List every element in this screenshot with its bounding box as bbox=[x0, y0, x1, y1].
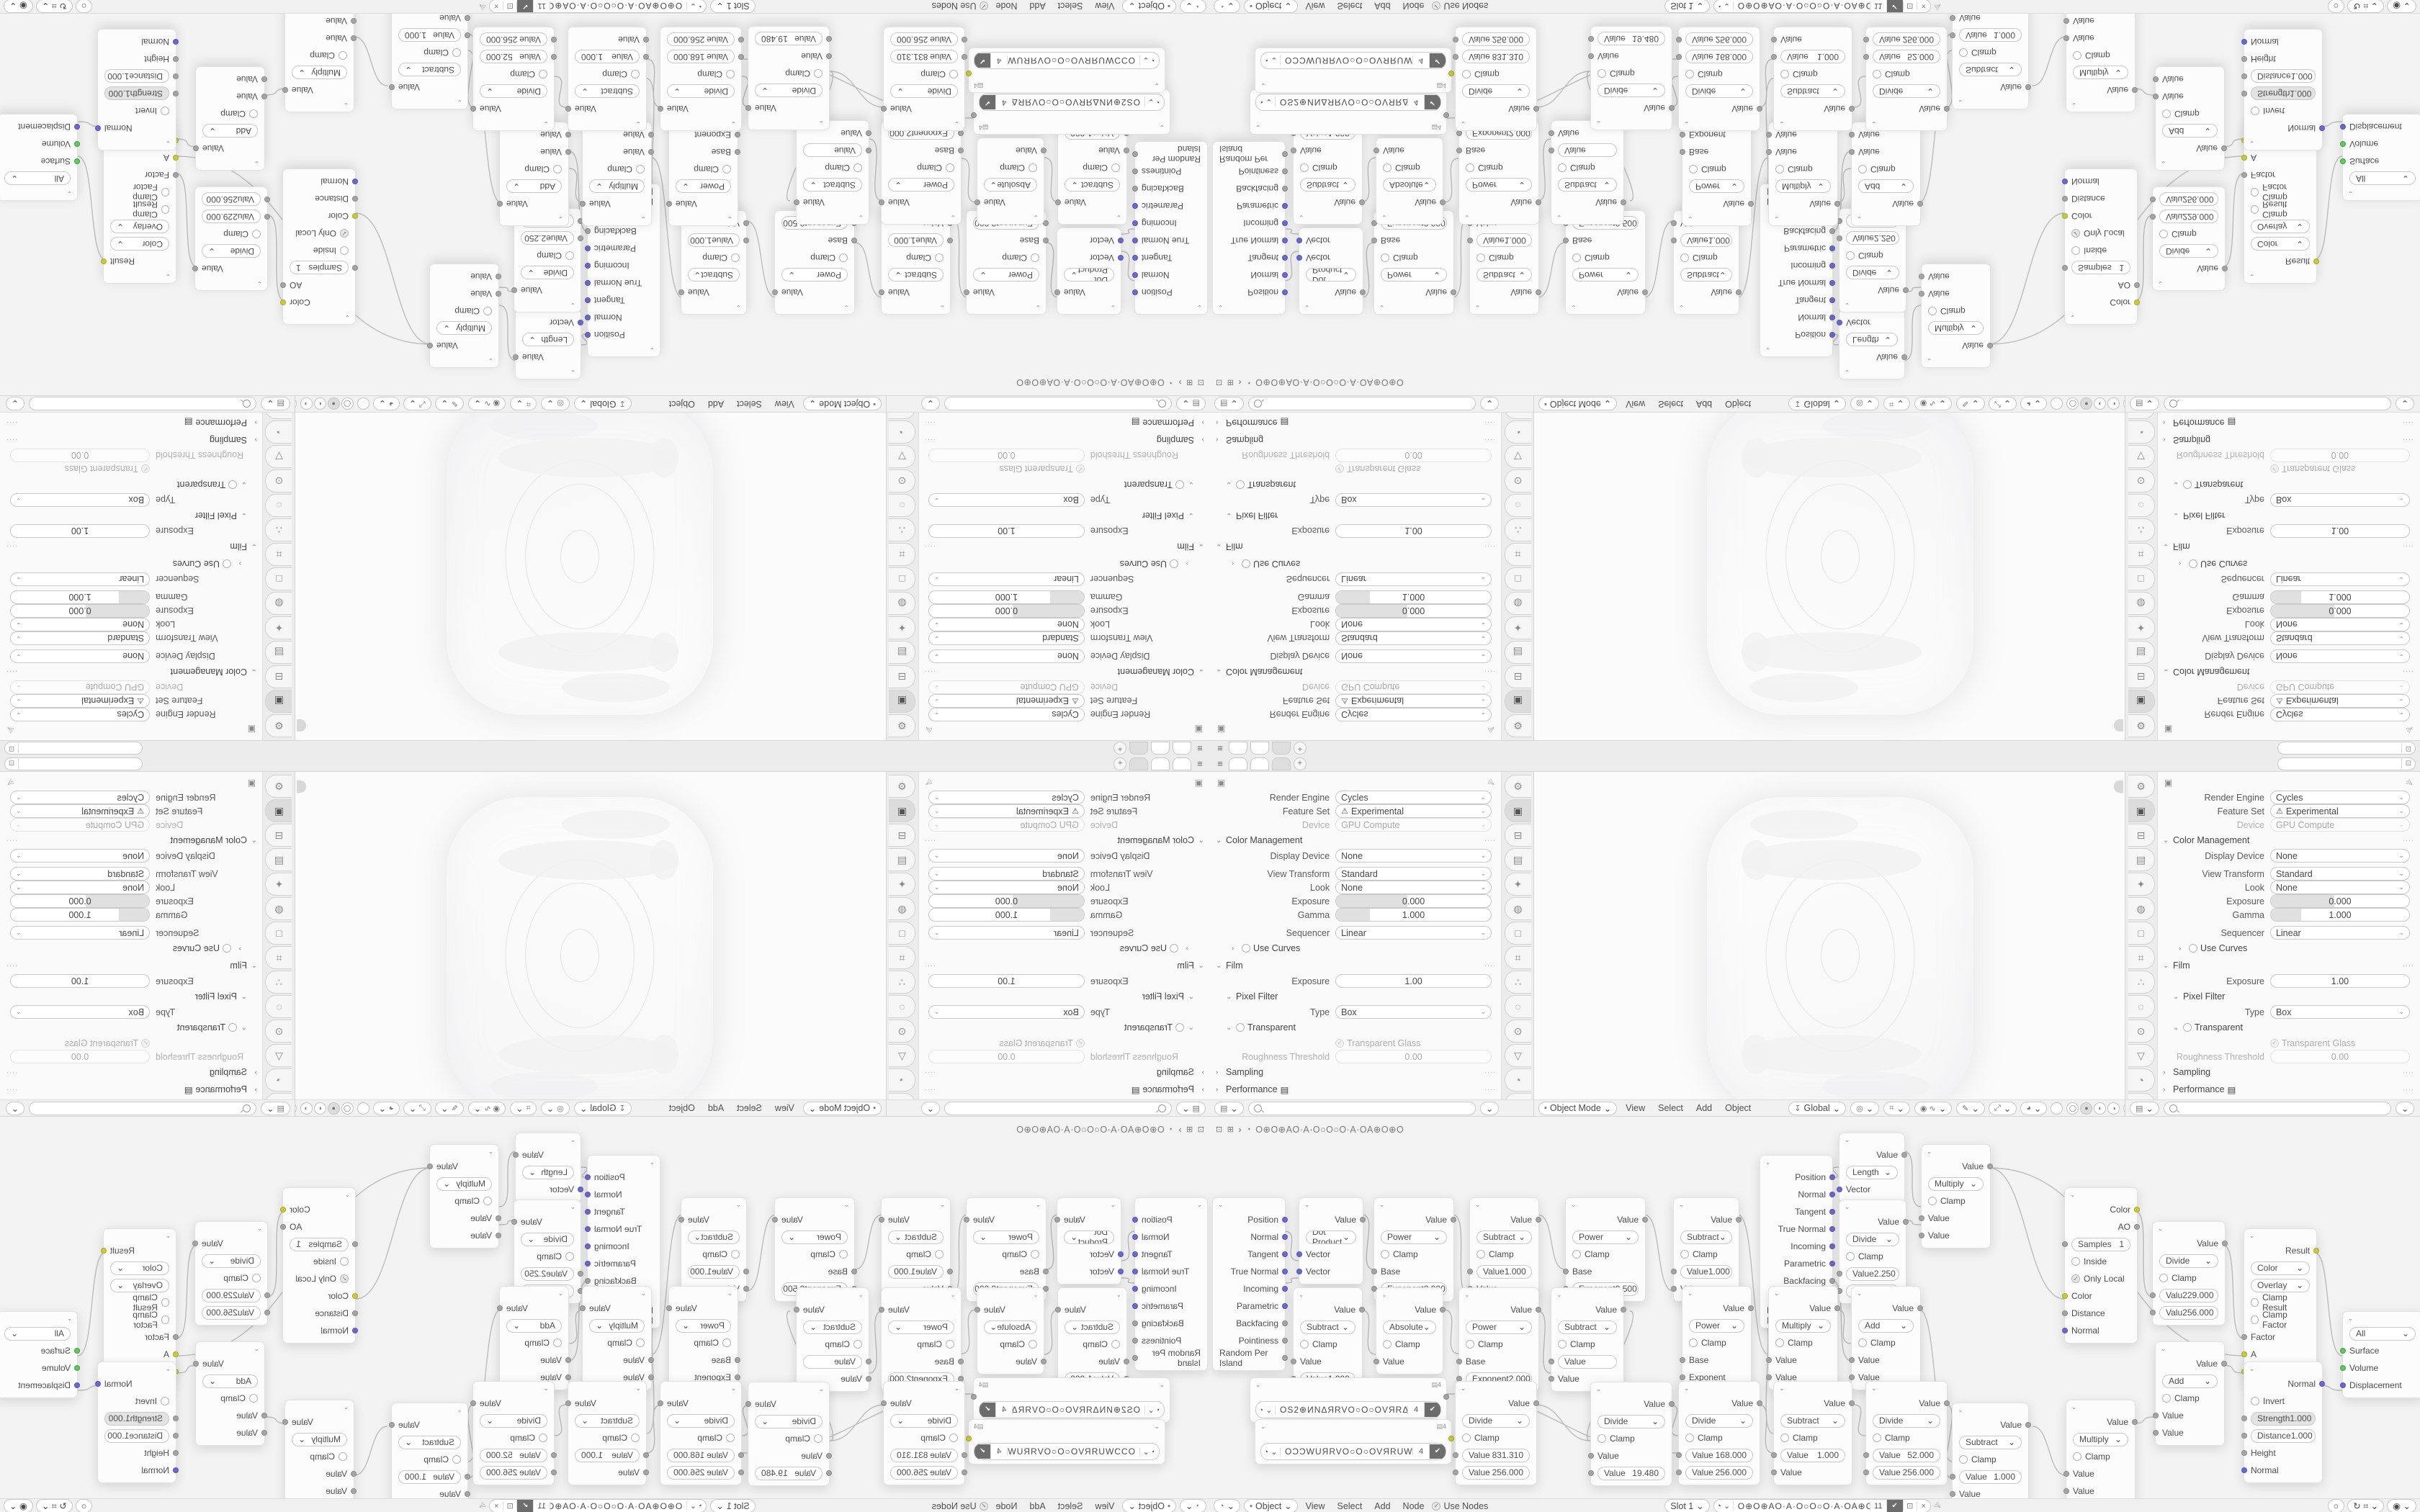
value-field[interactable]: Distance1.000 bbox=[2251, 70, 2316, 84]
node-menu-select[interactable]: Select bbox=[1333, 1, 1367, 12]
toggle-use-curves[interactable]: ›Use Curves bbox=[0, 940, 263, 957]
node-math-multiply-a[interactable]: ⌄ValueMultiply⌄ClampValueValue bbox=[1921, 264, 1991, 368]
tab-material[interactable]: ◔ bbox=[1505, 420, 1531, 444]
prop-field-feature-set[interactable]: ⚠Experimental⌄ bbox=[1335, 804, 1492, 818]
node-header[interactable]: ⌄ bbox=[516, 366, 581, 379]
prop-field-roughness-threshold[interactable]: 0.00 bbox=[1335, 449, 1492, 462]
pin-icon[interactable]: ⌲ bbox=[1932, 1500, 1943, 1512]
node-math-divide-19[interactable]: ⌄ValueDivide⌄ClampValueValue19.480 bbox=[1590, 26, 1672, 130]
node-header[interactable]: ⌄ bbox=[1953, 96, 2028, 109]
node-material-output[interactable]: ⌄All⌄SurfaceVolumeDisplacement bbox=[0, 114, 78, 201]
sidebar-toggle[interactable] bbox=[2114, 780, 2123, 793]
fake-user-shield-icon[interactable]: ✔ bbox=[980, 1403, 996, 1417]
shading-mode-3[interactable]: ◑ bbox=[300, 398, 313, 410]
node-math-subtract-f[interactable]: ⌄ValueSubtract⌄ClampValue1.000Value bbox=[391, 14, 468, 109]
value-field[interactable]: Samples1 bbox=[290, 261, 349, 275]
workspace-tab[interactable] bbox=[1151, 757, 1170, 770]
prop-field-look[interactable]: None⌄ bbox=[928, 881, 1085, 894]
node-vector-math-length[interactable]: ⌄ValueLength⌄Vector bbox=[515, 310, 581, 379]
node-header[interactable]: ⌄ bbox=[1760, 1156, 1832, 1169]
node-header-icon-1[interactable]: ↻ ⌗ ⌄ bbox=[36, 0, 73, 13]
node-ambient-occlusion[interactable]: ⌄ColorAOSamples1Inside✓Only LocalColorDi… bbox=[2064, 168, 2138, 325]
prop-field-type[interactable]: Box⌄ bbox=[1335, 1005, 1492, 1019]
fake-user-shield-icon[interactable]: ✔ bbox=[974, 53, 991, 68]
fake-user-shield-icon[interactable]: ✔ bbox=[974, 1444, 991, 1459]
section-sampling[interactable]: ›Sampling···· bbox=[2157, 1063, 2420, 1081]
snap-pill-2[interactable]: ◉ ∿⌄ bbox=[1914, 397, 1952, 411]
node-math-divide-831[interactable]: ⌄ValueDivide⌄ClampValue831.310Value256.0… bbox=[1455, 1381, 1537, 1485]
search-input[interactable] bbox=[944, 1102, 1172, 1115]
node-header[interactable]: ⌄ bbox=[1774, 117, 1852, 130]
operation-dropdown[interactable]: Divide⌄ bbox=[521, 266, 574, 280]
operation-dropdown[interactable]: Subtract⌄ bbox=[688, 1230, 740, 1244]
node-header[interactable]: ⌄ bbox=[1591, 1382, 1672, 1395]
section-pixel-filter[interactable]: ⌄Pixel Filter bbox=[0, 988, 263, 1005]
section-sampling[interactable]: ›Sampling···· bbox=[0, 1063, 263, 1081]
workspace-tab[interactable] bbox=[1272, 757, 1291, 770]
node-header[interactable]: ⌄ bbox=[104, 1229, 176, 1242]
node-math-power-a[interactable]: ⌄ValuePower⌄ClampBaseExponent2.000 bbox=[1373, 1197, 1454, 1302]
viewport-menu-add[interactable]: Add bbox=[704, 1103, 728, 1113]
node-header[interactable]: ⌄ bbox=[1213, 1198, 1285, 1211]
node-header-icon-2[interactable]: ◉ ⌄ bbox=[4, 1499, 33, 1512]
node-header[interactable]: ⌄ bbox=[430, 354, 498, 367]
toggle-use-curves[interactable]: ›Use Curves bbox=[1210, 555, 1502, 572]
node-header[interactable]: ⌄ bbox=[797, 211, 869, 224]
node-menu-add[interactable]: Add bbox=[1370, 1501, 1394, 1511]
operation-dropdown[interactable]: Multiply⌄ bbox=[589, 1319, 645, 1333]
tab-particles[interactable]: ∴ bbox=[266, 518, 292, 541]
node-header[interactable]: ⌄ bbox=[681, 1198, 746, 1211]
tab-physics[interactable]: ◌ bbox=[266, 494, 292, 517]
shader-type-dropdown[interactable]: ▪Object⌄ bbox=[1122, 0, 1176, 13]
section-color-management[interactable]: ⌄Color Management···· bbox=[1210, 832, 1502, 849]
tab-render[interactable]: ▣ bbox=[1505, 690, 1531, 713]
operation-dropdown[interactable]: Add⌄ bbox=[2162, 1374, 2218, 1388]
pause-button[interactable]: ‖ bbox=[295, 1102, 297, 1115]
prop-field-exposure[interactable]: 0.000 bbox=[10, 604, 150, 618]
node-math-subtract-e[interactable]: ⌄ValueSubtract⌄ClampValue1.000Value bbox=[1773, 27, 1852, 131]
tab-object-data[interactable]: ▽ bbox=[889, 1044, 916, 1067]
node-math-subtract-c[interactable]: ⌄ValueSubtract⌄ClampValueValue1.000 bbox=[1293, 1287, 1363, 1392]
node-header[interactable]: ⌄ bbox=[1566, 1198, 1645, 1211]
node-header[interactable]: ⌄ bbox=[283, 311, 355, 324]
tab-output[interactable]: ⊟ bbox=[889, 824, 916, 847]
node-header[interactable]: ⌄ bbox=[1456, 1382, 1536, 1395]
overlay-pill-1[interactable]: ⤢⌄ bbox=[403, 397, 431, 411]
prop-field-roughness-threshold[interactable]: 0.00 bbox=[2270, 449, 2410, 462]
value-field[interactable]: Valu256.000 bbox=[2159, 193, 2218, 207]
editor-type-button[interactable]: ▤⌄ bbox=[2130, 1102, 2159, 1115]
checkbox-transparent-glass[interactable]: ✓Transparent Glass bbox=[2270, 1038, 2410, 1048]
value-field[interactable]: Distance1.000 bbox=[2251, 1429, 2316, 1443]
node-header[interactable]: ⌄ bbox=[195, 1222, 267, 1235]
operation-dropdown[interactable]: Overlay⌄ bbox=[110, 220, 169, 234]
prop-field-exposure[interactable]: 1.00 bbox=[1335, 524, 1492, 538]
prop-field-exposure[interactable]: 0.000 bbox=[2270, 894, 2410, 908]
snap-pill-0[interactable]: ◎⌄ bbox=[1850, 1102, 1879, 1115]
node-bump[interactable]: ⌄NormalInvertStrength1.000Distance1.000H… bbox=[97, 29, 176, 150]
add-workspace-button[interactable]: + bbox=[1113, 742, 1126, 755]
tab-render[interactable]: ▣ bbox=[266, 690, 292, 713]
node-header[interactable]: ⌄ bbox=[2153, 277, 2225, 290]
node-header-icon-0[interactable]: ○ bbox=[2328, 0, 2345, 13]
prop-field-look[interactable]: None⌄ bbox=[10, 618, 150, 631]
value-field[interactable]: Value19.480 bbox=[755, 32, 823, 46]
tab-constraints[interactable]: ⊙ bbox=[889, 1020, 916, 1043]
tab-scene[interactable]: ✦ bbox=[889, 616, 916, 639]
prop-field-render-engine[interactable]: Cycles⌄ bbox=[10, 708, 150, 721]
tab-particles[interactable]: ∴ bbox=[1505, 518, 1531, 541]
value-field[interactable]: Value19.480 bbox=[1597, 32, 1665, 46]
node-math-multiply-c[interactable]: ⌄ValueMultiply⌄ClampValueValue bbox=[284, 14, 354, 112]
node-math-power-d[interactable]: ⌄ValuePower⌄ClampBaseExponent bbox=[668, 1286, 738, 1390]
tab-output[interactable]: ⊟ bbox=[266, 665, 292, 688]
tab-constraints[interactable]: ⊙ bbox=[2128, 469, 2155, 492]
toggle-radio[interactable] bbox=[1170, 944, 1178, 953]
copy-material-button[interactable]: ⊡ bbox=[1903, 1501, 1917, 1511]
overlay-pill-1[interactable]: ⤢⌄ bbox=[403, 1102, 431, 1115]
node-header[interactable]: ⌄ bbox=[1376, 1288, 1443, 1301]
node-menu-select[interactable]: Select bbox=[1333, 1501, 1367, 1511]
node-math-divide-831[interactable]: ⌄ValueDivide⌄ClampValue831.310Value256.0… bbox=[1455, 27, 1537, 131]
node-header[interactable]: ⌄ bbox=[473, 1382, 554, 1395]
operation-dropdown[interactable]: Color⌄ bbox=[110, 1261, 169, 1275]
node-menu-node[interactable]: Node bbox=[1399, 1, 1429, 12]
node-math-power-b[interactable]: ⌄ValuePower⌄ClampBaseExponent0.500 bbox=[774, 210, 855, 315]
tab-object[interactable]: □ bbox=[2128, 567, 2155, 590]
operation-dropdown[interactable]: Divide⌄ bbox=[1873, 85, 1940, 99]
prop-field-gamma[interactable]: 1.000 bbox=[2270, 590, 2410, 604]
unlink-material-button[interactable]: × bbox=[490, 1502, 503, 1511]
prop-field-view-transform[interactable]: Standard⌄ bbox=[928, 867, 1085, 881]
node-header[interactable]: ⌄ bbox=[1774, 1382, 1852, 1395]
operation-dropdown[interactable]: Divide⌄ bbox=[755, 1415, 823, 1428]
prop-field-display-device[interactable]: None⌄ bbox=[10, 649, 150, 663]
node-math-power-a[interactable]: ⌄ValuePower⌄ClampBaseExponent2.000 bbox=[966, 210, 1047, 315]
workspace-tab[interactable] bbox=[1250, 742, 1269, 755]
operation-dropdown[interactable]: Multiply⌄ bbox=[1928, 322, 1984, 336]
value-field[interactable]: Value831.310 bbox=[890, 1449, 958, 1462]
orientation-dropdown[interactable]: ↧Global⌄ bbox=[1788, 397, 1846, 411]
node-header[interactable]: ⌄ bbox=[588, 343, 660, 356]
prop-field-display-device[interactable]: None⌄ bbox=[10, 849, 150, 863]
editor-type-button[interactable]: ◔⌄ bbox=[1180, 1499, 1206, 1512]
operation-dropdown[interactable]: Subtract⌄ bbox=[688, 269, 740, 282]
value-field[interactable]: Distance1.000 bbox=[104, 70, 169, 84]
operation-dropdown[interactable]: Color⌄ bbox=[2251, 1261, 2310, 1275]
node-header[interactable]: ⌄▤4 bbox=[969, 79, 1165, 92]
tab-view-layer[interactable]: ▤ bbox=[266, 848, 292, 871]
value-field[interactable]: Value1.000 bbox=[1680, 234, 1732, 248]
node-header[interactable]: ⌄ bbox=[1551, 211, 1623, 224]
value-field[interactable]: Valu256.000 bbox=[2159, 1306, 2218, 1320]
node-header[interactable]: ⌄ bbox=[1679, 1382, 1760, 1395]
operation-dropdown[interactable]: Divide⌄ bbox=[755, 84, 823, 98]
node-canvas[interactable]: ⊡⊞›◔O⊕O⊕AO·A·O○O○O·A·OA⊕O⊕O⌄PositionNorm… bbox=[0, 1117, 1210, 1498]
tab-render[interactable]: ▣ bbox=[2128, 690, 2155, 713]
material-datablock[interactable]: ◔ ⌄O⊕O⊕AO·A·O○O○O·A·OA⊕O⊕O11✔⊡× bbox=[1713, 1499, 1931, 1512]
node-group-osl-b[interactable]: ⌄▤4◔ ⌄OƆƆWUЯRVO○O○OVЯRUWƆƆO4✔ bbox=[968, 48, 1165, 93]
editor-type-button[interactable]: ◔⌄ bbox=[1214, 0, 1240, 13]
operation-dropdown[interactable]: Absolute⌄ bbox=[984, 1320, 1037, 1334]
toggle-transparent[interactable]: ⌄Transparent bbox=[2157, 476, 2420, 493]
tab-view-layer[interactable]: ▤ bbox=[889, 641, 916, 664]
sidebar-toggle[interactable] bbox=[297, 719, 306, 732]
operation-dropdown[interactable]: Divide⌄ bbox=[202, 245, 261, 258]
checkbox-transparent-glass[interactable]: ✓Transparent Glass bbox=[928, 1038, 1085, 1048]
tab-scene[interactable]: ✦ bbox=[889, 873, 916, 896]
operation-dropdown[interactable]: Subtract⌄ bbox=[803, 1320, 862, 1334]
toggle-radio[interactable] bbox=[228, 480, 237, 489]
value-field[interactable]: Value256.000 bbox=[890, 33, 958, 47]
node-header[interactable]: ⌄ bbox=[392, 1403, 467, 1416]
value-field[interactable]: Value1.000 bbox=[1680, 1265, 1732, 1279]
material-slot-dropdown[interactable]: Slot 1⌄ bbox=[710, 1499, 755, 1512]
node-canvas[interactable]: ⊡⊞›◔O⊕O⊕AO·A·O○O○O·A·OA⊕O⊕O⌄PositionNorm… bbox=[0, 14, 1210, 395]
overlay-pill-0[interactable]: ✎⌄ bbox=[435, 1102, 464, 1115]
prop-field-exposure[interactable]: 1.00 bbox=[928, 974, 1085, 988]
value-field[interactable]: Value1.000 bbox=[1959, 1470, 2022, 1484]
value-field[interactable]: Value1.000 bbox=[1780, 1449, 1845, 1462]
tab-scene[interactable]: ✦ bbox=[1505, 616, 1531, 639]
node-ambient-occlusion[interactable]: ⌄ColorAOSamples1Inside✓Only LocalColorDi… bbox=[282, 168, 356, 325]
tab-object[interactable]: □ bbox=[889, 922, 916, 945]
prop-field-view-transform[interactable]: Standard⌄ bbox=[2270, 867, 2410, 881]
toggle-radio[interactable] bbox=[1242, 559, 1250, 568]
value-field[interactable]: Value256.000 bbox=[1873, 33, 1940, 47]
shading-mode-3[interactable]: ◑ bbox=[2107, 398, 2120, 410]
tab-output[interactable]: ⊟ bbox=[2128, 665, 2155, 688]
operation-dropdown[interactable]: Divide⌄ bbox=[1597, 84, 1665, 98]
shading-mode-1[interactable]: ● bbox=[2080, 1102, 2092, 1115]
tab-object-data[interactable]: ▽ bbox=[266, 1044, 292, 1067]
tab-object-data[interactable]: ▽ bbox=[889, 445, 916, 468]
prop-field-sequencer[interactable]: Linear⌄ bbox=[10, 572, 150, 586]
node-header[interactable]: ⌄ bbox=[882, 211, 961, 224]
tab-physics[interactable]: ◌ bbox=[889, 995, 916, 1018]
operation-dropdown[interactable]: Add⌄ bbox=[202, 125, 258, 138]
value-field[interactable]: Value256.000 bbox=[667, 1466, 735, 1480]
operation-dropdown[interactable]: Divide⌄ bbox=[480, 85, 547, 99]
node-math-multiply-c[interactable]: ⌄ValueMultiply⌄ClampValueValue bbox=[2066, 14, 2136, 112]
filter-button[interactable]: ⌄ bbox=[6, 1102, 24, 1115]
operation-dropdown[interactable]: Multiply⌄ bbox=[2073, 1433, 2128, 1446]
prop-field-gamma[interactable]: 1.000 bbox=[928, 908, 1085, 922]
prop-field-sequencer[interactable]: Linear⌄ bbox=[928, 572, 1085, 586]
tab-world[interactable]: ◍ bbox=[1505, 897, 1531, 920]
operation-dropdown[interactable]: Multiply⌄ bbox=[1775, 180, 1831, 194]
overlay-pill-2[interactable]: ◕⌄ bbox=[373, 1102, 400, 1115]
section-performance[interactable]: ›Performance▤···· bbox=[1210, 414, 1502, 431]
node-vector-math-length[interactable]: ⌄ValueLength⌄Vector bbox=[1839, 1133, 1905, 1202]
section-film[interactable]: ⌄Film···· bbox=[1210, 538, 1502, 555]
tab-particles[interactable]: ∴ bbox=[889, 518, 916, 541]
node-canvas[interactable]: ⊡⊞›◔O⊕O⊕AO·A·O○O○O·A·OA⊕O⊕O⌄PositionNorm… bbox=[1210, 14, 2420, 395]
scene-datablock[interactable]: ⊡ bbox=[4, 742, 143, 755]
node-math-power-b[interactable]: ⌄ValuePower⌄ClampBaseExponent0.500 bbox=[1565, 210, 1646, 315]
fake-user-shield-icon[interactable]: ✔ bbox=[1429, 53, 1446, 68]
toggle-radio[interactable] bbox=[1175, 1023, 1184, 1032]
tab-view-layer[interactable]: ▤ bbox=[889, 848, 916, 871]
pin-icon[interactable]: ⌲ bbox=[476, 1500, 488, 1512]
node-group-osl-a[interactable]: ⌄▤4◔ ⌄OS2⊕ИNΔЯRVO○O○OVЯRΔNИ⊕2SO4✔ bbox=[1250, 89, 1447, 135]
prop-field-device[interactable]: GPU Compute⌄ bbox=[10, 680, 150, 694]
snap-pill-0[interactable]: ◎⌄ bbox=[541, 397, 570, 411]
shading-mode-2[interactable]: ◐ bbox=[2094, 398, 2106, 410]
node-header[interactable]: ⌄ bbox=[516, 1133, 581, 1146]
operation-dropdown[interactable]: Add⌄ bbox=[1858, 1319, 1914, 1333]
tab-render[interactable]: ▣ bbox=[2128, 799, 2155, 822]
operation-dropdown[interactable]: Subtract⌄ bbox=[1558, 1320, 1617, 1334]
operation-dropdown[interactable]: Subtract⌄ bbox=[1959, 1436, 2022, 1449]
shading-mode-1[interactable]: ● bbox=[328, 1102, 340, 1115]
prop-field-exposure[interactable]: 1.00 bbox=[928, 524, 1085, 538]
node-math-add-b[interactable]: ⌄ValueAdd⌄ClampValueValue bbox=[195, 1341, 265, 1446]
prop-field-look[interactable]: None⌄ bbox=[1335, 881, 1492, 894]
material-datablock[interactable]: ◔ ⌄O⊕O⊕AO·A·O○O○O·A·OA⊕O⊕O11✔⊡× bbox=[489, 1499, 707, 1512]
prop-field-view-transform[interactable]: Standard⌄ bbox=[2270, 631, 2410, 645]
node-menu-add[interactable]: Add bbox=[1370, 1, 1394, 12]
editor-type-button[interactable]: ▤⌄ bbox=[261, 397, 290, 411]
tab-world[interactable]: ◍ bbox=[266, 897, 292, 920]
value-field[interactable]: Value1.000 bbox=[888, 1265, 944, 1279]
tab-modifiers[interactable]: ⌗ bbox=[266, 946, 292, 969]
toggle-radio[interactable] bbox=[1170, 559, 1178, 568]
value-field[interactable]: Strength1.000 bbox=[2251, 1412, 2316, 1426]
value-field[interactable]: Valu229.000 bbox=[2159, 1289, 2218, 1302]
prop-field-exposure[interactable]: 0.000 bbox=[1335, 894, 1492, 908]
node-header[interactable]: ⌄ bbox=[1057, 301, 1121, 314]
tab-output[interactable]: ⊟ bbox=[1505, 824, 1531, 847]
value-field[interactable]: Value256.000 bbox=[480, 1466, 547, 1480]
tab-material[interactable]: ◔ bbox=[266, 1068, 292, 1092]
toggle-radio[interactable] bbox=[2189, 559, 2197, 568]
toggle-radio[interactable] bbox=[1236, 480, 1245, 489]
node-menu-view[interactable]: View bbox=[1090, 1, 1119, 12]
viewport-menu-view[interactable]: View bbox=[1621, 1103, 1649, 1113]
node-header-icon-0[interactable]: ○ bbox=[76, 1499, 93, 1512]
material-datablock[interactable]: ◔ ⌄O⊕O⊕AO·A·O○O○O·A·OA⊕O⊕O11✔⊡× bbox=[489, 0, 707, 13]
value-field[interactable]: Value2.250 bbox=[521, 1267, 574, 1281]
app-menu-icon[interactable]: ≡ bbox=[1214, 743, 1226, 754]
node-header[interactable]: ⌄ bbox=[977, 211, 1044, 224]
section-performance[interactable]: ›Performance▤···· bbox=[1210, 1081, 1502, 1098]
operation-dropdown[interactable]: Divide⌄ bbox=[2159, 245, 2218, 258]
tab-view-layer[interactable]: ▤ bbox=[2128, 848, 2155, 871]
operation-dropdown[interactable]: Subtract⌄ bbox=[1680, 269, 1732, 282]
node-header[interactable]: ⌄ bbox=[1376, 211, 1443, 224]
operation-dropdown[interactable]: Length⌄ bbox=[1846, 1166, 1898, 1179]
node-header[interactable]: ⌄ bbox=[1459, 211, 1538, 224]
prop-field-look[interactable]: None⌄ bbox=[2270, 881, 2410, 894]
shading-mode-2[interactable]: ◐ bbox=[314, 398, 326, 410]
node-math-multiply-b[interactable]: ⌄ValueMultiply⌄ClampValueValue bbox=[1768, 122, 1838, 226]
section-pixel-filter[interactable]: ⌄Pixel Filter bbox=[2157, 507, 2420, 524]
prop-field-display-device[interactable]: None⌄ bbox=[1335, 849, 1492, 863]
toggle-use-curves[interactable]: ›Use Curves bbox=[918, 940, 1210, 957]
prop-field-render-engine[interactable]: Cycles⌄ bbox=[10, 791, 150, 804]
node-header[interactable]: ⌄ bbox=[500, 212, 568, 225]
operation-dropdown[interactable]: Subtract⌄ bbox=[575, 85, 640, 99]
node-header[interactable]: ⌄ bbox=[1294, 211, 1362, 224]
operation-dropdown[interactable]: All⌄ bbox=[4, 172, 71, 186]
operation-dropdown[interactable]: All⌄ bbox=[2349, 172, 2416, 186]
tab-modifiers[interactable]: ⌗ bbox=[1505, 543, 1531, 566]
prop-field-roughness-threshold[interactable]: 0.00 bbox=[1335, 1050, 1492, 1063]
snap-pill-2[interactable]: ◉ ∿⌄ bbox=[468, 1102, 506, 1115]
tab-object[interactable]: □ bbox=[1505, 567, 1531, 590]
tab-constraints[interactable]: ⊙ bbox=[266, 469, 292, 492]
prop-field-type[interactable]: Box⌄ bbox=[2270, 1005, 2410, 1019]
breadcrumb-icon-1[interactable]: ⊞ bbox=[1227, 1125, 1234, 1134]
node-header[interactable]: ⌄ bbox=[1953, 1403, 2028, 1416]
search-input[interactable] bbox=[29, 397, 256, 411]
node-math-divide-19[interactable]: ⌄ValueDivide⌄ClampValueValue19.480 bbox=[748, 1382, 830, 1486]
node-math-multiply-b[interactable]: ⌄ValueMultiply⌄ClampValueValue bbox=[582, 1286, 652, 1390]
search-input[interactable] bbox=[944, 397, 1172, 411]
node-math-subtract-d[interactable]: ⌄ValueSubtract⌄ClampValueValue bbox=[796, 1287, 869, 1392]
operation-dropdown[interactable]: Divide⌄ bbox=[890, 85, 958, 99]
toggle-radio[interactable] bbox=[2189, 944, 2197, 953]
node-header[interactable]: ⌄▤4 bbox=[1250, 1378, 1446, 1391]
node-menu-select[interactable]: Select bbox=[1054, 1501, 1088, 1511]
operation-dropdown[interactable]: Overlay⌄ bbox=[110, 1279, 169, 1292]
prop-field-look[interactable]: None⌄ bbox=[1335, 618, 1492, 631]
node-header[interactable]: ⌄ bbox=[1866, 1382, 1947, 1395]
editor-type-button[interactable]: ◔⌄ bbox=[1180, 0, 1206, 13]
filter-button[interactable]: ⌄ bbox=[921, 1102, 940, 1115]
filter-button[interactable]: ⌄ bbox=[2396, 1102, 2414, 1115]
tab-output[interactable]: ⊟ bbox=[266, 824, 292, 847]
node-header[interactable]: ⌄ bbox=[1299, 301, 1363, 314]
node-header[interactable]: ⌄ bbox=[1470, 301, 1538, 314]
prop-field-device[interactable]: GPU Compute⌄ bbox=[928, 680, 1085, 694]
tab-material[interactable]: ◔ bbox=[889, 420, 916, 444]
node-header[interactable]: ⌄ bbox=[1760, 343, 1832, 356]
node-header[interactable]: ⌄ bbox=[882, 1198, 950, 1211]
viewport-menu-view[interactable]: View bbox=[771, 1103, 799, 1113]
tab-tool[interactable]: ⚙ bbox=[266, 714, 292, 737]
tab-scene[interactable]: ✦ bbox=[1505, 873, 1531, 896]
tab-object-data[interactable]: ▽ bbox=[2128, 445, 2155, 468]
prop-field-gamma[interactable]: 1.000 bbox=[1335, 908, 1492, 922]
tab-object[interactable]: □ bbox=[889, 567, 916, 590]
prop-field-device[interactable]: GPU Compute⌄ bbox=[2270, 680, 2410, 694]
unlink-material-button[interactable]: × bbox=[1917, 2, 1930, 11]
prop-field-exposure[interactable]: 1.00 bbox=[10, 524, 150, 538]
section-performance[interactable]: ›Performance▤···· bbox=[918, 1081, 1210, 1098]
pause-button[interactable]: ‖ bbox=[295, 397, 297, 411]
material-slot-dropdown[interactable]: Slot 1⌄ bbox=[1664, 1499, 1709, 1512]
node-header[interactable]: ⌄ bbox=[195, 277, 267, 290]
value-field[interactable]: Value1.000 bbox=[688, 234, 740, 248]
node-math-divide-52[interactable]: ⌄ValueDivide⌄ClampValue52.000Value256.00… bbox=[1865, 1381, 1948, 1485]
tab-world[interactable]: ◍ bbox=[2128, 897, 2155, 920]
node-header[interactable]: ⌄ bbox=[583, 212, 651, 225]
prop-field-feature-set[interactable]: ⚠Experimental⌄ bbox=[928, 804, 1085, 818]
breadcrumb-icon-1[interactable]: ⊞ bbox=[1186, 378, 1193, 387]
operation-dropdown[interactable]: Overlay⌄ bbox=[2251, 1279, 2310, 1292]
operation-dropdown[interactable]: Power⌄ bbox=[973, 1230, 1039, 1244]
toggle-transparent[interactable]: ⌄Transparent bbox=[0, 1019, 263, 1036]
prop-field-render-engine[interactable]: Cycles⌄ bbox=[2270, 708, 2410, 721]
node-header[interactable]: ⌄ bbox=[1866, 117, 1947, 130]
tab-particles[interactable]: ∴ bbox=[889, 971, 916, 994]
shading-mode-3[interactable]: ◑ bbox=[2107, 1102, 2120, 1115]
operation-dropdown[interactable]: Power⌄ bbox=[973, 269, 1039, 282]
prop-field-exposure[interactable]: 1.00 bbox=[2270, 974, 2410, 988]
